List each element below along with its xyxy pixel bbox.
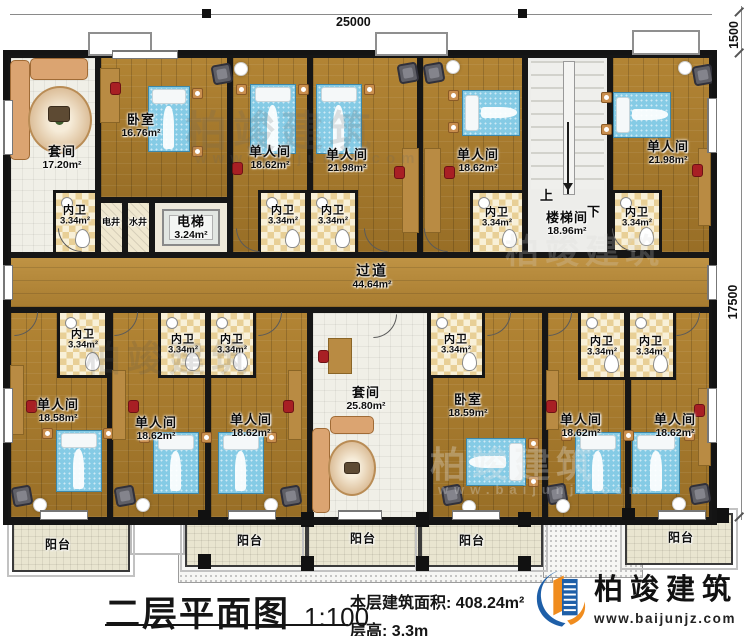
window (338, 510, 382, 520)
room-label: 单人间18.62m² (654, 413, 696, 439)
room-area: 3.34m² (482, 219, 512, 230)
lamp (678, 61, 692, 75)
chair (113, 484, 136, 507)
bed-hr (466, 438, 526, 486)
brand-url: www.baijunjz.com (594, 611, 738, 626)
room-label: 楼梯间18.96m² (546, 211, 588, 237)
room-name: 单人间 (457, 148, 499, 163)
window (707, 388, 717, 443)
stand (201, 432, 212, 443)
room-area: 18.58m² (37, 412, 79, 424)
lamp (136, 498, 150, 512)
stair-down-label: 下 (587, 201, 600, 220)
bay-window (632, 30, 700, 55)
balcony-pillar (518, 556, 531, 571)
desk (100, 68, 120, 123)
room-name: 水井 (129, 217, 147, 227)
room-name: 套间 (42, 145, 81, 160)
room-label: 内卫3.34m² (636, 336, 666, 359)
chair (691, 63, 714, 86)
window (707, 265, 717, 300)
balcony-pillar (622, 508, 635, 523)
room-name: 单人间 (230, 413, 272, 428)
room-label: 单人间21.98m² (326, 148, 368, 174)
rchair (110, 82, 121, 95)
room-area: 3.34m² (268, 217, 298, 228)
room-area: 3.34m² (441, 346, 471, 357)
dimension-line-right (741, 6, 742, 520)
room-label: 套间17.20m² (42, 145, 81, 171)
room-label: 单人间18.62m² (457, 148, 499, 174)
stand (601, 124, 612, 135)
room-label: 单人间18.62m² (560, 413, 602, 439)
floor-area-row: 本层建筑面积: 408.24m² (350, 589, 524, 613)
chair (422, 61, 445, 84)
brand-text: 柏竣建筑 www.baijunjz.com (594, 566, 738, 626)
lamp (672, 497, 686, 511)
room-name: 电井 (102, 217, 120, 227)
floor-height-row: 层高: 3.3m (350, 617, 524, 636)
room-label: 内卫3.34m² (60, 205, 90, 228)
balcony-pillar (416, 512, 429, 527)
window (707, 98, 717, 153)
room-area: 44.64m² (352, 279, 391, 291)
room-name: 单人间 (326, 148, 368, 163)
bed-v (316, 84, 362, 154)
rchair (318, 350, 329, 363)
stand (448, 90, 459, 101)
room-label: 单人间21.98m² (647, 140, 689, 166)
room-label: 单人间18.58m² (37, 398, 79, 424)
room-label: 内卫3.34m² (68, 329, 98, 352)
room-label: 内卫3.34m² (587, 336, 617, 359)
brand-name: 柏竣建筑 (594, 566, 738, 608)
bed-v (575, 432, 621, 494)
room-area: 21.98m² (326, 162, 368, 174)
brand-logo: 柏竣建筑 www.baijunjz.com (536, 566, 738, 630)
chair (396, 61, 419, 84)
plan-stats: 本层建筑面积: 408.24m² 层高: 3.3m (350, 589, 524, 636)
room-label: 内卫3.34m² (268, 205, 298, 228)
room-label: 单人间18.62m² (230, 413, 272, 439)
room-area: 18.96m² (546, 225, 588, 237)
room-area: 18.62m² (249, 159, 291, 171)
dimension-top-value: 25000 (333, 15, 374, 29)
room-name: 阳台 (668, 531, 694, 544)
dimension-marker (518, 9, 527, 18)
desk (698, 148, 711, 226)
title-underline (105, 624, 348, 626)
room-name: 过道 (352, 263, 391, 279)
room-area: 3.34m² (68, 341, 98, 352)
room-label: 内卫3.34m² (441, 334, 471, 357)
room-label: 电梯3.24m² (174, 215, 207, 241)
stand (42, 428, 53, 439)
floor-height-value: 3.3m (392, 623, 428, 636)
room-label: 内卫3.34m² (318, 205, 348, 228)
floor-area-value: 408.24m² (456, 595, 525, 612)
room-label: 水井 (129, 217, 147, 227)
balcony-pillar (416, 556, 429, 571)
chair (210, 62, 233, 85)
room-name: 阳台 (45, 538, 71, 551)
room-area: 17.20m² (42, 159, 81, 171)
room-name: 楼梯间 (546, 211, 588, 226)
window (228, 510, 276, 520)
window (3, 265, 13, 300)
stand (298, 84, 309, 95)
sofa (330, 416, 374, 434)
room-name: 阳台 (459, 534, 485, 547)
balcony-pillar (198, 554, 211, 569)
room-area: 3.34m² (168, 346, 198, 357)
room-label: 套间25.80m² (346, 386, 385, 412)
desk (402, 148, 419, 233)
room-label: 过道44.64m² (352, 263, 391, 290)
stand (364, 84, 375, 95)
bed-h (462, 90, 520, 136)
stand (192, 146, 203, 157)
chair (279, 484, 302, 507)
room-area: 3.34m² (622, 219, 652, 230)
rchair (394, 166, 405, 179)
room-name: 阳台 (350, 532, 376, 545)
window (658, 510, 706, 520)
stair-direction-arrow (567, 122, 569, 194)
floor-area-label: 本层建筑面积: (350, 595, 451, 612)
floor-plan: 阳台阳台阳台阳台阳台套间17.20m²卧室16.76m²单人间18.62m²单人… (0, 0, 750, 636)
stand (192, 88, 203, 99)
rchair (444, 166, 455, 179)
window (40, 510, 88, 520)
bed-h (613, 92, 671, 138)
rchair (26, 400, 37, 413)
balcony-pillar (518, 512, 531, 527)
balcony-pillar (198, 510, 211, 525)
room-name: 电梯 (174, 215, 207, 230)
bed-v (56, 430, 102, 492)
room-area: 3.34m² (60, 217, 90, 228)
room-shaft-water (125, 200, 152, 255)
rchair (283, 400, 294, 413)
room-name: 单人间 (560, 413, 602, 428)
room-name: 单人间 (37, 398, 79, 413)
room-label: 内卫3.34m² (622, 207, 652, 230)
room-label: 电井 (102, 217, 120, 227)
room-label: 阳台 (45, 538, 71, 551)
stand (528, 476, 539, 487)
rchair (692, 164, 703, 177)
room-area: 3.34m² (587, 348, 617, 359)
room-area: 3.34m² (217, 346, 247, 357)
window (3, 388, 13, 443)
room-label: 内卫3.34m² (168, 334, 198, 357)
room-area: 16.76m² (121, 127, 160, 139)
balcony-pillar (301, 512, 314, 527)
room-label: 阳台 (237, 534, 263, 547)
brand-building-icon (536, 566, 588, 630)
bed-v (218, 432, 264, 494)
room-name: 单人间 (249, 145, 291, 160)
plan-title: 二层平面图 (105, 586, 290, 636)
lamp (446, 60, 460, 74)
ctable (48, 106, 70, 122)
stair-up-label: 上 (540, 185, 553, 204)
stand (601, 92, 612, 103)
stair-stringer (563, 61, 575, 195)
room-name: 卧室 (121, 113, 160, 128)
room-area: 25.80m² (346, 400, 385, 412)
room-name: 阳台 (237, 534, 263, 547)
balcony-pillar (301, 556, 314, 571)
rchair (128, 400, 139, 413)
room-name: 单人间 (654, 413, 696, 428)
balcony-pillar (716, 508, 729, 523)
room-area: 18.62m² (560, 427, 602, 439)
dimension-marker (202, 9, 211, 18)
sofa (10, 60, 30, 160)
lamp (556, 499, 570, 513)
room-area: 18.62m² (654, 427, 696, 439)
desk (328, 338, 352, 374)
bed-v (632, 432, 680, 494)
room-area: 3.34m² (636, 348, 666, 359)
room-label: 单人间18.62m² (249, 145, 291, 171)
desk (112, 370, 126, 440)
floor-plan-canvas: 阳台阳台阳台阳台阳台套间17.20m²卧室16.76m²单人间18.62m²单人… (0, 0, 750, 636)
dimension-right-top-value: 1500 (727, 7, 741, 63)
stand (528, 438, 539, 449)
room-area: 3.24m² (174, 229, 207, 241)
floor-height-label: 层高: (350, 623, 387, 636)
chair (10, 484, 33, 507)
sofa (30, 58, 88, 80)
window (112, 50, 178, 59)
bay-window (375, 32, 448, 56)
room-area: 18.62m² (135, 430, 177, 442)
room-name: 套间 (346, 386, 385, 401)
room-label: 单人间18.62m² (135, 416, 177, 442)
room-area: 21.98m² (647, 154, 689, 166)
room-label: 阳台 (350, 532, 376, 545)
room-label: 阳台 (459, 534, 485, 547)
room-shaft-elec (98, 200, 125, 255)
room-name: 单人间 (135, 416, 177, 431)
room-area: 18.59m² (448, 407, 487, 419)
desk (424, 148, 441, 233)
dimension-right-side-value: 17500 (726, 269, 740, 335)
entry-porch (130, 517, 185, 555)
lamp (234, 62, 248, 76)
title-block: 二层平面图 1:100 (105, 586, 369, 636)
window (452, 510, 500, 520)
room-label: 内卫3.34m² (482, 207, 512, 230)
room-area: 18.62m² (230, 427, 272, 439)
room-name: 单人间 (647, 140, 689, 155)
stand (623, 430, 634, 441)
room-label: 阳台 (668, 531, 694, 544)
room-label: 内卫3.34m² (217, 334, 247, 357)
room-label: 卧室16.76m² (121, 113, 160, 139)
rchair (546, 400, 557, 413)
room-area: 3.34m² (318, 217, 348, 228)
stand (448, 122, 459, 133)
room-name: 卧室 (448, 393, 487, 408)
chair (440, 483, 463, 506)
ctable (344, 462, 360, 474)
window (3, 100, 13, 155)
chair (688, 482, 711, 505)
rchair (232, 162, 243, 175)
room-label: 卧室18.59m² (448, 393, 487, 419)
stand (236, 84, 247, 95)
room-area: 18.62m² (457, 162, 499, 174)
